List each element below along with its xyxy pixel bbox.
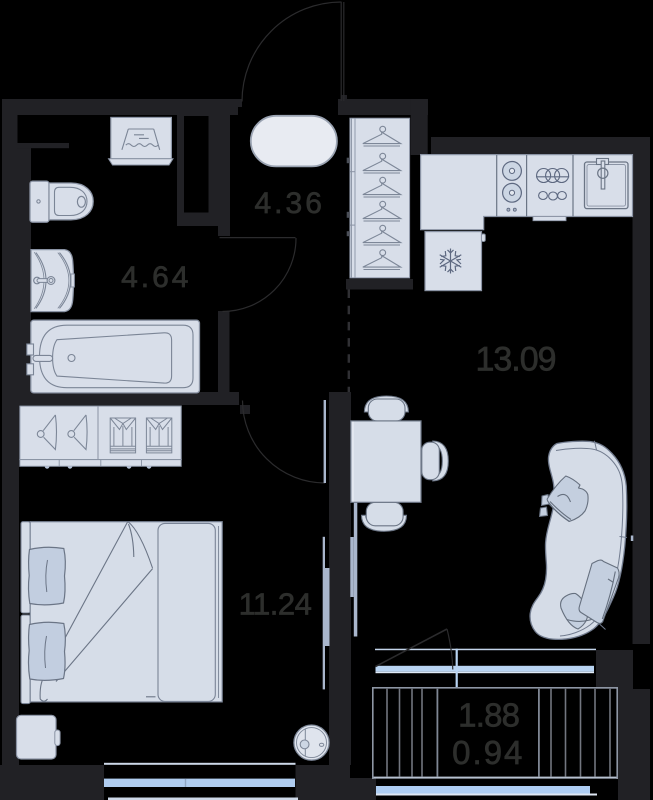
svg-text:11.24: 11.24	[239, 587, 312, 622]
svg-text:13.09: 13.09	[475, 341, 555, 379]
svg-text:4.64: 4.64	[121, 261, 191, 294]
svg-text:1.88: 1.88	[458, 696, 519, 733]
svg-text:4.36: 4.36	[255, 187, 325, 220]
svg-text:0.94: 0.94	[452, 734, 524, 771]
